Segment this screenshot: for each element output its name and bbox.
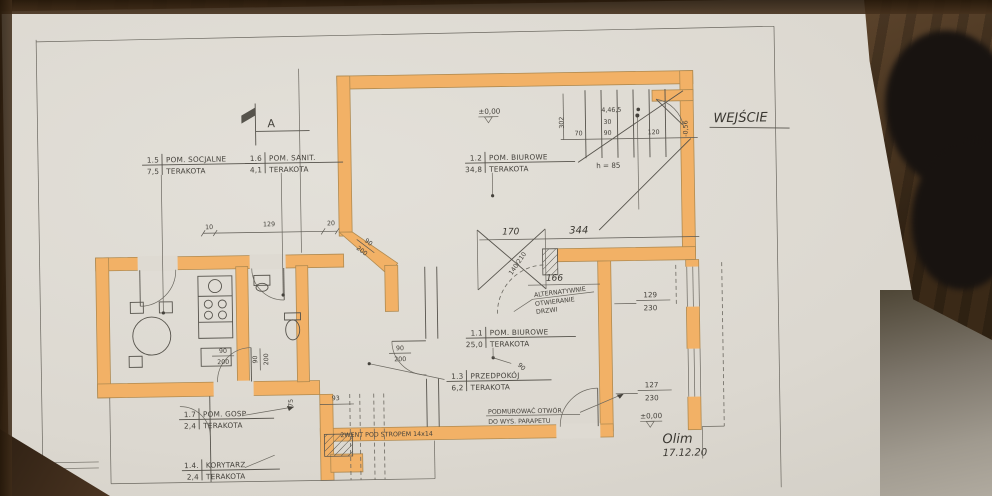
svg-text:POM. BIUROWE: POM. BIUROWE bbox=[489, 152, 548, 162]
svg-text:93: 93 bbox=[332, 395, 340, 402]
room-label-1-7: 1.7 POM. GOSP 2,4 TERAKOTA bbox=[179, 407, 274, 430]
door-dim-2: 90 200 bbox=[252, 348, 270, 370]
svg-text:h = 85: h = 85 bbox=[596, 161, 620, 170]
svg-text:75: 75 bbox=[288, 399, 295, 407]
svg-text:129: 129 bbox=[263, 221, 275, 228]
svg-text:TERAKOTA: TERAKOTA bbox=[470, 382, 511, 392]
svg-text:DRZWI: DRZWI bbox=[536, 306, 558, 316]
svg-text:TERAKOTA: TERAKOTA bbox=[205, 472, 246, 482]
svg-text:Olim: Olim bbox=[662, 432, 692, 447]
svg-text:127: 127 bbox=[645, 380, 659, 389]
hand-dim-170: 170 bbox=[502, 227, 520, 237]
svg-text:PRZEDPOKÓJ: PRZEDPOKÓJ bbox=[470, 371, 519, 381]
svg-text:2,4: 2,4 bbox=[184, 421, 197, 430]
svg-text:17.12.20: 17.12.20 bbox=[663, 447, 708, 459]
level-marker-top: ±0,00 bbox=[478, 107, 501, 123]
svg-text:34,8: 34,8 bbox=[465, 165, 482, 174]
note-alternative-door: ALTERNATYWNIE OTWIERANIE DRZWI bbox=[512, 285, 596, 319]
svg-text:140/210: 140/210 bbox=[508, 251, 528, 277]
svg-text:1.2: 1.2 bbox=[470, 153, 482, 162]
note-entrance: WEJŚCIE bbox=[709, 109, 789, 129]
svg-text:20: 20 bbox=[327, 220, 335, 227]
svg-text:POM. GOSP: POM. GOSP bbox=[203, 409, 247, 419]
svg-text:70: 70 bbox=[575, 130, 583, 137]
svg-text:4,1: 4,1 bbox=[250, 165, 262, 174]
svg-text:200: 200 bbox=[394, 356, 406, 363]
bathroom-fixtures bbox=[254, 275, 301, 341]
svg-text:±0,00: ±0,00 bbox=[478, 107, 501, 116]
svg-text:POM. BIUROWE: POM. BIUROWE bbox=[490, 327, 549, 337]
room-label-1-1: 1.1 POM. BIUROWE 25,0 TERAKOTA bbox=[466, 325, 576, 349]
svg-text:TERAKOTA: TERAKOTA bbox=[488, 164, 529, 174]
svg-text:±0,00: ±0,00 bbox=[640, 411, 663, 420]
svg-text:129: 129 bbox=[643, 290, 657, 299]
svg-text:90: 90 bbox=[396, 345, 404, 352]
svg-text:7,5: 7,5 bbox=[147, 167, 159, 176]
svg-text:4,46,5: 4,46,5 bbox=[601, 107, 621, 114]
svg-text:DO WYS. PARAPETU: DO WYS. PARAPETU bbox=[488, 418, 551, 426]
room-label-1-2: 1.2 POM. BIUROWE 34,8 TERAKOTA bbox=[465, 150, 575, 174]
svg-text:2,4: 2,4 bbox=[187, 472, 200, 481]
svg-text:90: 90 bbox=[604, 130, 612, 137]
svg-text:1.1: 1.1 bbox=[470, 328, 482, 337]
svg-text:1.3: 1.3 bbox=[451, 372, 464, 381]
desk-wood-top-edge bbox=[0, 0, 992, 14]
svg-text:2WENT POD STROPEM 14x14: 2WENT POD STROPEM 14x14 bbox=[340, 431, 433, 439]
svg-text:POM. SOCJALNE: POM. SOCJALNE bbox=[166, 154, 227, 164]
svg-text:30: 30 bbox=[603, 119, 611, 126]
paper-sheet: A ±0,00 ±0,00 10 129 bbox=[2, 0, 951, 496]
svg-text:PODMUROWAĆ OTWÓR: PODMUROWAĆ OTWÓR bbox=[488, 406, 563, 416]
svg-text:200: 200 bbox=[263, 353, 270, 365]
svg-text:1.4.: 1.4. bbox=[184, 461, 199, 470]
svg-text:KORYTARZ: KORYTARZ bbox=[206, 460, 246, 470]
svg-text:302: 302 bbox=[558, 117, 565, 129]
svg-text:1.5: 1.5 bbox=[147, 155, 159, 164]
svg-text:TERAKOTA: TERAKOTA bbox=[202, 421, 243, 431]
svg-text:25,0: 25,0 bbox=[466, 340, 483, 349]
kitchen-fixtures bbox=[128, 276, 233, 368]
svg-text:6,2: 6,2 bbox=[451, 383, 463, 392]
room-label-1-4: 1.4. KORYTARZ 2,4 TERAKOTA bbox=[182, 458, 280, 482]
svg-text:POM. SANIT.: POM. SANIT. bbox=[269, 153, 316, 163]
note-vent: 2WENT POD STROPEM 14x14 bbox=[340, 431, 433, 439]
svg-text:TERAKOTA: TERAKOTA bbox=[268, 165, 309, 175]
svg-text:200: 200 bbox=[217, 359, 229, 366]
svg-text:1.7: 1.7 bbox=[184, 410, 197, 419]
section-letter: A bbox=[267, 117, 275, 130]
svg-text:120: 120 bbox=[648, 129, 660, 136]
handwritten-signature: Olim 17.12.20 bbox=[662, 426, 707, 459]
svg-text:230: 230 bbox=[643, 303, 657, 312]
hand-dim-344: 344 bbox=[569, 225, 588, 236]
desk-wood-left-edge bbox=[0, 0, 12, 496]
svg-text:230: 230 bbox=[645, 393, 659, 402]
stairs bbox=[577, 89, 692, 231]
svg-text:10: 10 bbox=[205, 224, 213, 231]
room-label-1-3: 1.3 PRZEDPOKÓJ 6,2 TERAKOTA bbox=[446, 369, 551, 393]
svg-text:WEJŚCIE: WEJŚCIE bbox=[713, 109, 768, 126]
hand-dim-166: 166 bbox=[546, 274, 564, 284]
photo-scene: A ±0,00 ±0,00 10 129 bbox=[0, 0, 992, 496]
level-marker-bottom: ±0,00 bbox=[640, 411, 663, 427]
partition-walls bbox=[108, 262, 725, 484]
room-label-1-6: 1.6 POM. SANIT. 4,1 TERAKOTA bbox=[245, 151, 343, 175]
floor-plan-drawing: A ±0,00 ±0,00 10 129 bbox=[0, 0, 992, 496]
svg-text:TERAKOTA: TERAKOTA bbox=[489, 339, 530, 349]
svg-text:90: 90 bbox=[219, 348, 227, 355]
svg-text:-0,56: -0,56 bbox=[682, 120, 689, 136]
svg-text:1.6: 1.6 bbox=[250, 154, 263, 163]
svg-text:90: 90 bbox=[252, 355, 259, 363]
room-label-1-5: 1.5 POM. SOCJALNE 7,5 TERAKOTA bbox=[142, 152, 257, 176]
svg-text:TERAKOTA: TERAKOTA bbox=[165, 166, 206, 176]
